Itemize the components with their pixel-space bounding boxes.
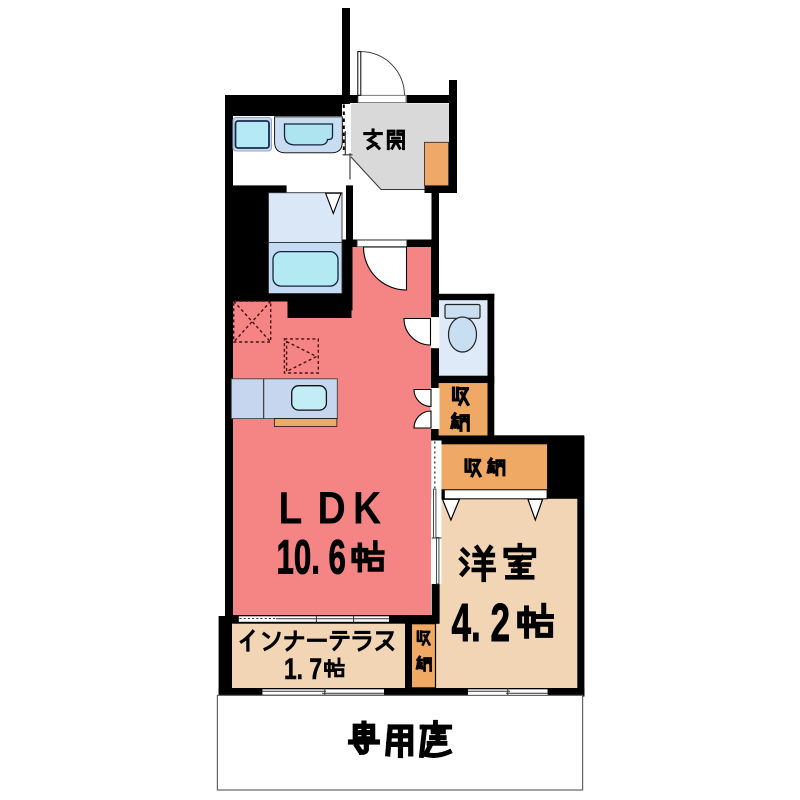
- svg-text:K: K: [353, 483, 382, 533]
- svg-text:1. 7: 1. 7: [284, 652, 322, 686]
- svg-text:10. 6: 10. 6: [277, 530, 346, 585]
- svg-text:D: D: [318, 483, 346, 533]
- svg-text:L: L: [279, 483, 303, 533]
- svg-text:4. 2: 4. 2: [452, 592, 511, 652]
